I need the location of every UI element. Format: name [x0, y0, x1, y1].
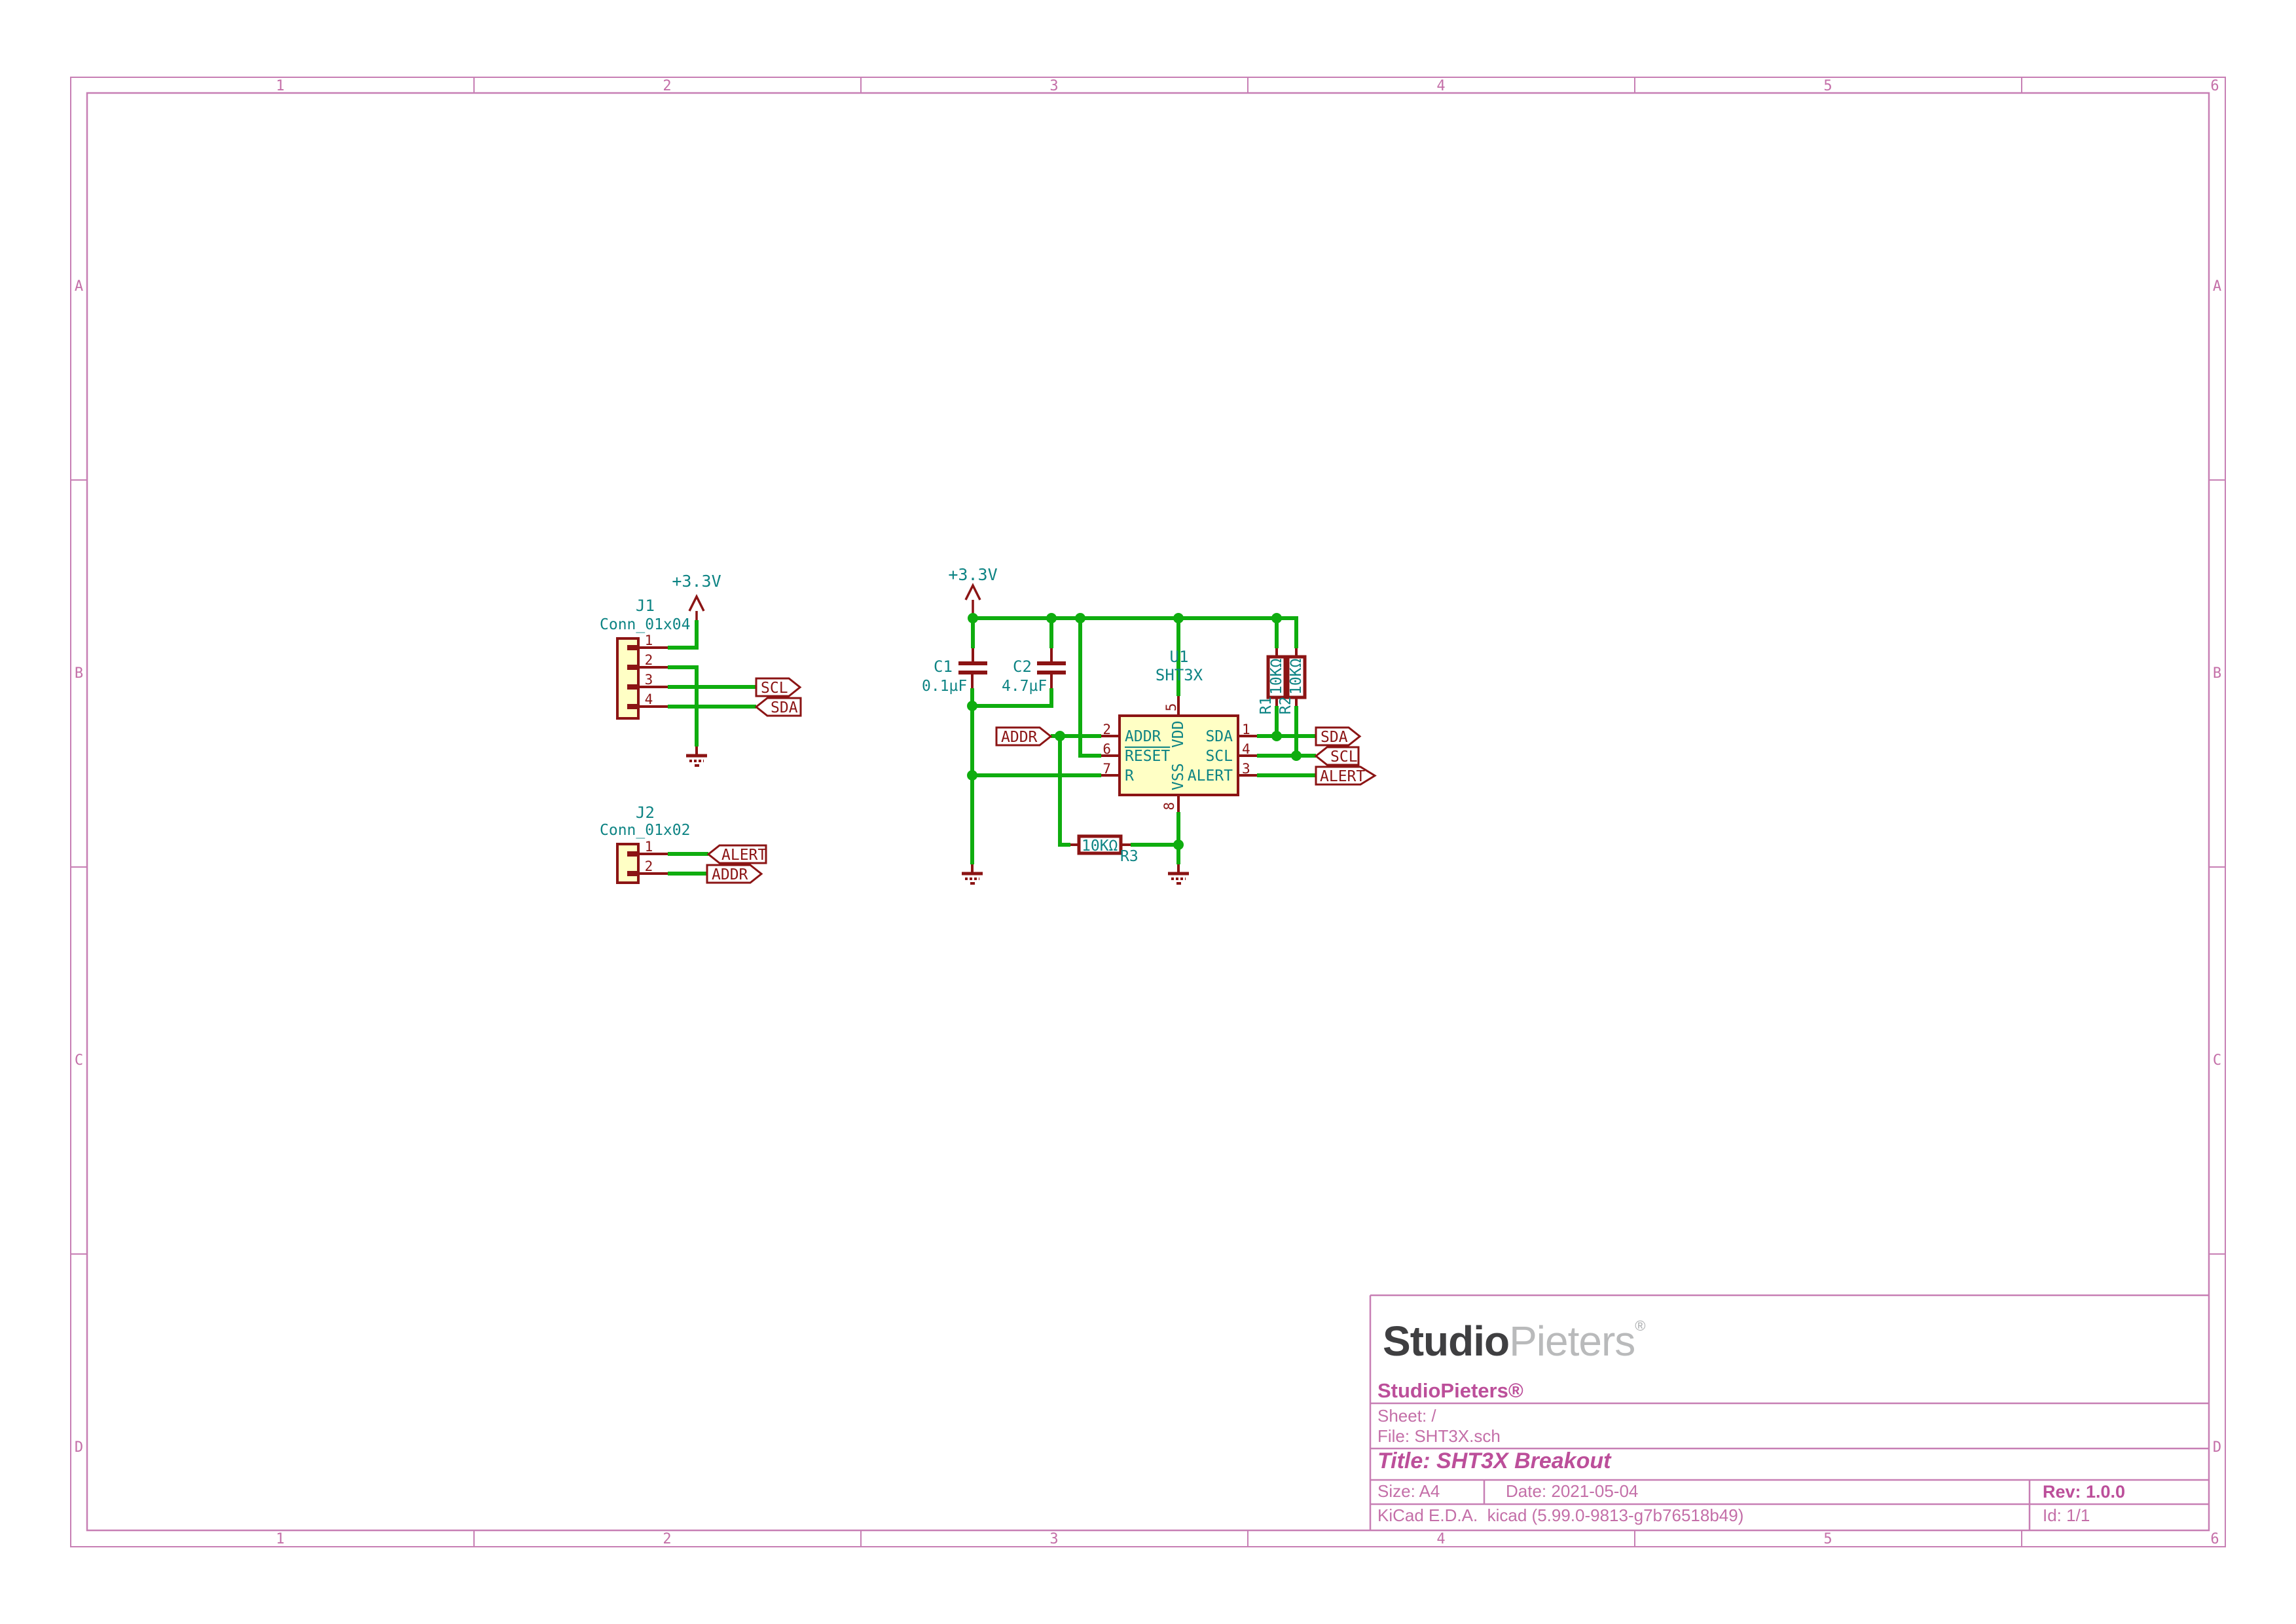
gnd-symbol-vss[interactable]: [1168, 864, 1189, 883]
frame-col-label: 1: [267, 1531, 293, 1547]
global-label-sda[interactable]: SDA: [1321, 729, 1348, 746]
j1-pin-number: 3: [643, 672, 655, 688]
j1-reference[interactable]: J1: [636, 597, 655, 616]
u1-pin-number: 2: [1094, 722, 1111, 737]
u1-pin-number: 3: [1242, 761, 1250, 777]
frame-col-label: 2: [654, 1531, 680, 1547]
u1-pin-name-reset: RESET: [1125, 748, 1170, 765]
date-field: Date: 2021-05-04: [1506, 1482, 1638, 1502]
c2-reference[interactable]: C2: [1013, 658, 1032, 676]
frame-col-label: 2: [654, 78, 680, 94]
frame-outer-border: [71, 77, 2225, 1547]
u1-pin-number: 4: [1242, 741, 1250, 757]
r3-reference[interactable]: R3: [1120, 848, 1139, 865]
c1-capacitor-plates[interactable]: [958, 661, 987, 674]
company-name: StudioPieters®: [1377, 1379, 1523, 1403]
frame-row-label: B: [2209, 665, 2225, 682]
u1-pin-number: 5: [1163, 699, 1179, 715]
power-3v3-j1[interactable]: [689, 597, 704, 620]
power-symbols[interactable]: [689, 585, 980, 620]
frame-inner-border: [87, 93, 2209, 1530]
global-label-alert[interactable]: ALERT: [1320, 768, 1365, 785]
logo-light-part: Pieters: [1509, 1318, 1635, 1365]
power-net-label[interactable]: +3.3V: [940, 566, 1006, 585]
file-field: File: SHT3X.sch: [1377, 1427, 1501, 1447]
c2-capacitor-plates[interactable]: [1037, 661, 1066, 674]
global-label-sda[interactable]: SDA: [771, 699, 798, 716]
rev-field: Rev: 1.0.0: [2043, 1482, 2125, 1502]
c1-reference[interactable]: C1: [934, 658, 953, 676]
frame-row-label: D: [2209, 1439, 2225, 1456]
gnd-symbol-c1[interactable]: [962, 864, 983, 883]
global-label-alert[interactable]: ALERT: [721, 847, 767, 864]
frame-col-label: 4: [1428, 78, 1454, 94]
frame-col-label: 3: [1041, 78, 1067, 94]
global-label-addr[interactable]: ADDR: [712, 866, 748, 883]
sheet-id-field: Id: 1/1: [2043, 1506, 2090, 1526]
kicad-schematic-page: 1 2 3 4 5 6 1 2 3 4 5 6 A B C D A B C D …: [0, 0, 2296, 1624]
frame-col-label: 1: [267, 78, 293, 94]
u1-pin-number: 1: [1242, 722, 1250, 737]
u1-pin-name-alert: ALERT: [1187, 767, 1233, 784]
frame-row-label: A: [71, 278, 87, 295]
c2-value[interactable]: 4.7µF: [1002, 678, 1047, 695]
sheet-field: Sheet: /: [1377, 1407, 1436, 1426]
u1-value[interactable]: SHT3X: [1146, 667, 1212, 685]
j2-value[interactable]: Conn_01x02: [600, 822, 690, 839]
gnd-symbol-j1[interactable]: [686, 747, 707, 766]
frame-col-label: 6: [2202, 1531, 2228, 1547]
j2-pin-number: 2: [643, 858, 655, 874]
c1-value[interactable]: 0.1µF: [922, 678, 967, 695]
logo-registered-mark: ®: [1635, 1318, 1645, 1334]
wire-rail-3v3[interactable]: [972, 618, 1296, 648]
u1-pin-name-vdd: VDD: [1170, 714, 1187, 754]
frame-col-label: 4: [1428, 1531, 1454, 1547]
j2-connector-body[interactable]: [617, 844, 638, 883]
frame-col-label: 5: [1815, 78, 1841, 94]
global-label-addr[interactable]: ADDR: [1001, 729, 1037, 746]
global-label-scl[interactable]: SCL: [1330, 748, 1358, 766]
frame-row-label: A: [2209, 278, 2225, 295]
frame-row-label: B: [71, 665, 87, 682]
schematic-canvas[interactable]: [0, 0, 2296, 1624]
u1-pin-number: 6: [1094, 741, 1111, 757]
j2-pin-number: 1: [643, 839, 655, 855]
global-label-scl[interactable]: SCL: [761, 680, 788, 697]
u1-pin-name-addr: ADDR: [1125, 728, 1161, 745]
u1-reference[interactable]: U1: [1146, 648, 1212, 667]
u1-pin-name-r: R: [1125, 767, 1134, 784]
u1-pin-name-vss: VSS: [1170, 757, 1187, 796]
u1-pin-number: 8: [1161, 798, 1177, 814]
frame-col-label: 6: [2202, 78, 2228, 94]
frame-row-label: C: [2209, 1052, 2225, 1069]
sheet-frame: [71, 77, 2225, 1547]
frame-row-label: D: [71, 1439, 87, 1456]
frame-row-label: C: [71, 1052, 87, 1069]
r2-value[interactable]: 10KΩ: [1288, 657, 1305, 696]
j1-value[interactable]: Conn_01x04: [600, 616, 690, 633]
size-field: Size: A4: [1377, 1482, 1440, 1502]
u1-pin-name-sda: SDA: [1194, 728, 1233, 745]
power-net-label[interactable]: +3.3V: [664, 572, 729, 591]
u1-pin-number: 7: [1094, 761, 1111, 777]
logo-bold-part: Studio: [1383, 1318, 1509, 1365]
j2-reference[interactable]: J2: [636, 804, 655, 822]
r3-value[interactable]: 10KΩ: [1082, 838, 1118, 855]
frame-ticks: [71, 77, 2225, 1547]
u1-pin-name-scl: SCL: [1194, 748, 1233, 765]
studiopieters-logo: StudioPieters®: [1383, 1318, 1645, 1366]
r1-value[interactable]: 10KΩ: [1268, 657, 1285, 696]
frame-col-label: 3: [1041, 1531, 1067, 1547]
wire-addr-r3[interactable]: [1060, 736, 1070, 845]
j1-pin-number: 4: [643, 692, 655, 707]
tool-version-field: KiCad E.D.A. kicad (5.99.0-9813-g7b76518…: [1377, 1506, 1743, 1526]
j1-pin-number: 1: [643, 633, 655, 648]
sheet-title: Title: SHT3X Breakout: [1377, 1449, 1611, 1474]
frame-col-label: 5: [1815, 1531, 1841, 1547]
j1-pin-number: 2: [643, 652, 655, 668]
